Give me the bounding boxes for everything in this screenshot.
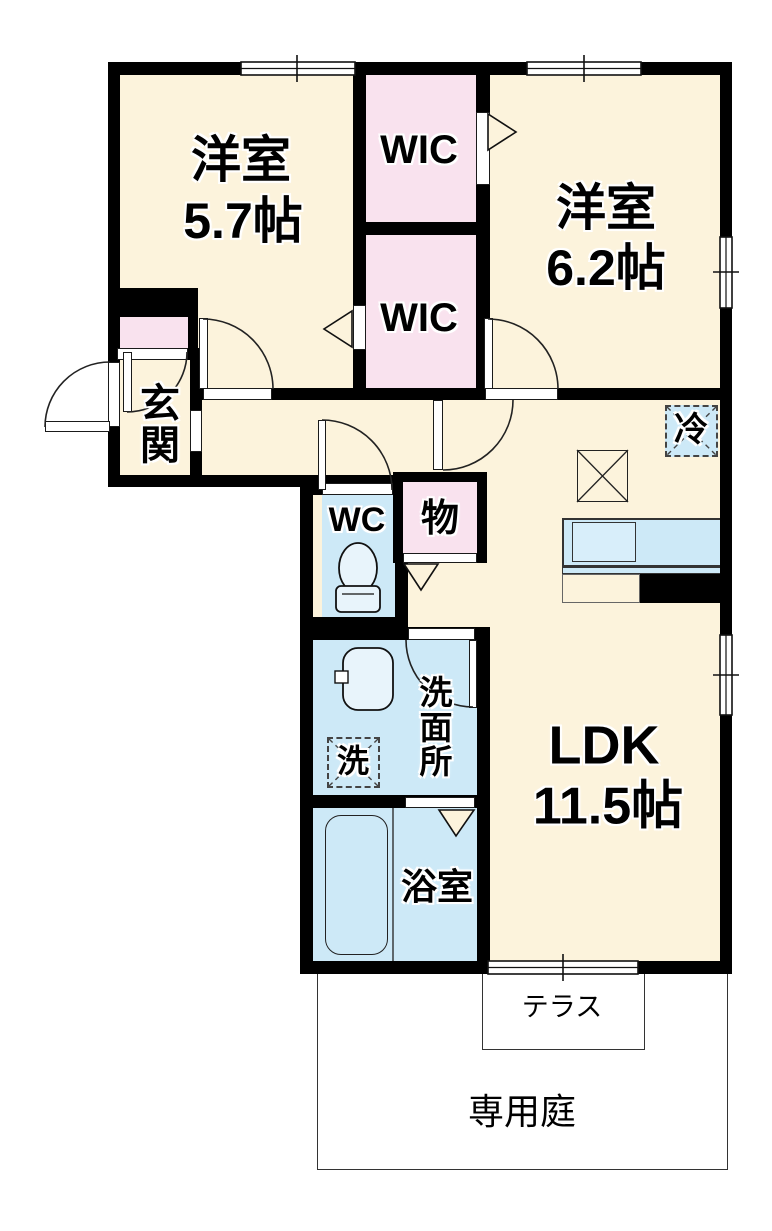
bedroom1-label: 洋室 xyxy=(191,134,291,187)
bathtub-icon xyxy=(325,815,388,955)
wic-upper-door-opening xyxy=(476,112,490,185)
wall-wic-left xyxy=(353,75,366,400)
bedroom2-door-leaf xyxy=(484,318,493,389)
bedroom1-door-opening xyxy=(203,388,272,400)
storage-label: 物 xyxy=(421,500,459,540)
wall-bottom xyxy=(300,961,732,974)
wall-left-lower xyxy=(300,475,313,974)
garden-label: 専用庭 xyxy=(468,1093,576,1131)
entrance-door-arc xyxy=(45,362,110,427)
hallway-floor xyxy=(202,400,313,475)
wall-ldk-left xyxy=(477,627,490,961)
wall-right xyxy=(720,62,732,974)
wic-lower-label: WIC xyxy=(380,297,458,339)
wall-top xyxy=(108,62,732,75)
wc-door-leaf xyxy=(318,420,326,490)
range-hood-box xyxy=(577,450,628,502)
terrace-label: テラス xyxy=(522,993,602,1021)
washroom-label: 洗面所 xyxy=(419,676,454,780)
bathroom-door-opening xyxy=(405,797,475,808)
kitchen-sink xyxy=(572,522,636,562)
washer-label: 洗 xyxy=(337,745,369,779)
entrance-inner-door-leaf xyxy=(123,352,132,412)
wall-wc-bottom xyxy=(302,617,408,640)
kitchen-lower-cabinet xyxy=(562,574,640,603)
wc-door-opening xyxy=(322,483,393,495)
bedroom2-label: 洋室 xyxy=(556,182,656,235)
ldk-door-leaf xyxy=(433,400,443,470)
wall-bedroom1-corner xyxy=(108,288,198,317)
wall-kitchen-end xyxy=(640,574,723,603)
refrigerator-label: 冷 xyxy=(674,413,708,449)
bedroom1-door-leaf xyxy=(199,318,208,389)
wall-wic-divider xyxy=(353,222,490,235)
kitchen-counter-edge xyxy=(562,567,723,574)
wic-lower-door-opening xyxy=(353,305,366,350)
entrance-door-leaf xyxy=(45,421,110,432)
storage-door-opening xyxy=(403,553,477,563)
washroom-door-leaf xyxy=(469,640,477,708)
washroom-door-opening xyxy=(408,628,475,640)
wc-label: WC xyxy=(329,503,386,539)
shoe-cabinet xyxy=(117,317,188,348)
bathroom-label: 浴室 xyxy=(401,868,473,906)
ldk-label: LDK xyxy=(549,718,660,775)
bedroom2-size: 6.2帖 xyxy=(546,242,666,295)
ldk-size: 11.5帖 xyxy=(533,780,683,835)
wic-upper-label: WIC xyxy=(380,129,458,171)
floor-plan: 洋室 5.7帖 WIC WIC 洋室 6.2帖 玄関 WC 物 冷 洗面所 洗 … xyxy=(0,0,772,1231)
bedroom1-size: 5.7帖 xyxy=(183,195,303,248)
bedroom2-door-opening xyxy=(485,388,558,400)
entrance-door-opening xyxy=(108,362,120,427)
wall-entrance-bottom xyxy=(108,475,313,487)
entrance-label: 玄関 xyxy=(139,383,181,467)
entrance-hall-opening xyxy=(190,410,202,452)
